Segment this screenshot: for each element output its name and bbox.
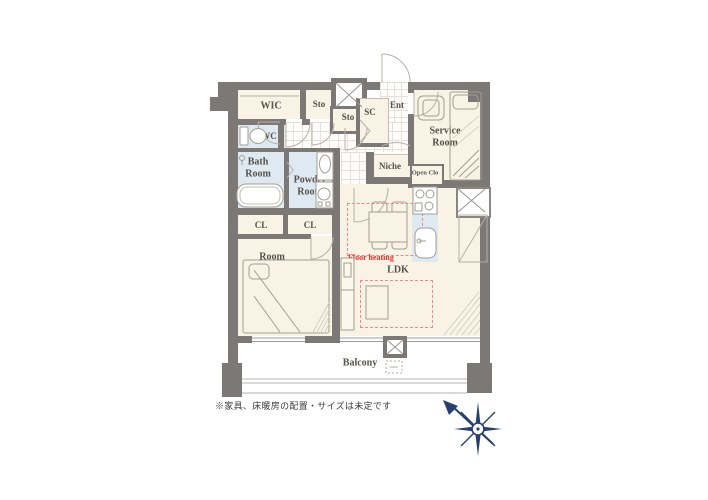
balcony-railing <box>242 379 467 393</box>
wall <box>238 82 333 90</box>
label-open-clo: Open Clo <box>412 169 439 176</box>
label-room: Room <box>259 251 285 263</box>
floor-plan: WIC Sto Sto SC Ent WC Bath Room Powder R… <box>0 0 708 500</box>
label-wic: WIC <box>260 100 281 112</box>
window <box>252 336 305 343</box>
wall <box>408 82 470 90</box>
label-floor-heating: Floor heating <box>348 253 428 262</box>
wall <box>366 177 412 184</box>
label-niche: Niche <box>379 161 401 171</box>
label-balcony: Balcony <box>343 357 377 369</box>
label-sc: SC <box>364 107 376 117</box>
wall <box>408 85 414 93</box>
wall <box>238 234 311 239</box>
wall <box>228 90 238 343</box>
wall <box>305 336 340 343</box>
wall <box>302 119 310 125</box>
pipe-space-box <box>456 187 491 218</box>
wall <box>365 82 380 90</box>
balcony-drain-icon <box>386 361 402 373</box>
window <box>407 336 480 343</box>
balcony-pillar <box>467 363 492 393</box>
label-bath: Bath Room <box>240 157 276 180</box>
hallway-tiles-vertical <box>341 152 366 185</box>
label-service: Service Room <box>421 126 469 149</box>
label-ldk: LDK <box>387 264 409 276</box>
label-cl-right: CL <box>304 220 317 230</box>
window <box>340 336 383 343</box>
wall <box>278 120 284 148</box>
label-sto-lower: Sto <box>342 112 355 122</box>
wall <box>332 215 340 336</box>
floor-heating-zone <box>347 203 423 256</box>
wall <box>228 336 254 343</box>
shoe-closet-box <box>356 98 389 147</box>
wall <box>228 208 340 215</box>
wall <box>480 98 490 363</box>
disclaimer-note: ※家具、床暖房の配置・サイズは未定です <box>215 399 391 412</box>
wall <box>210 97 228 111</box>
balcony-pillar-box <box>383 336 407 358</box>
balcony-pillar <box>222 363 242 397</box>
label-sto-upper: Sto <box>313 99 326 109</box>
floor-heating-zone-2 <box>360 280 433 328</box>
label-cl-left: CL <box>255 220 268 230</box>
wall <box>228 343 238 363</box>
compass-icon <box>443 400 502 456</box>
wall <box>408 114 414 166</box>
wall <box>300 90 306 119</box>
label-wc: WC <box>261 131 277 141</box>
label-powder: Powder Room <box>288 175 332 198</box>
wall <box>332 148 340 215</box>
label-ent: Ent <box>390 100 404 110</box>
